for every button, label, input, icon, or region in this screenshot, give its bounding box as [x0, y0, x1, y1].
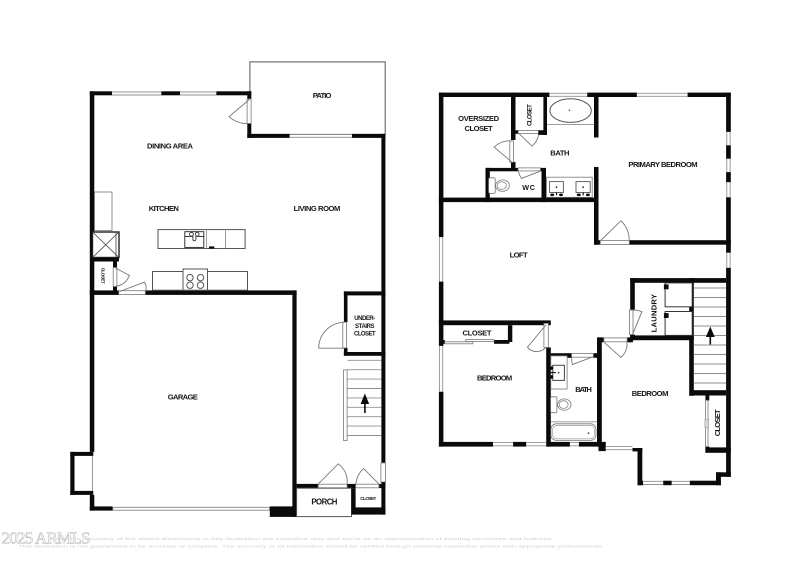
svg-text:LOFT: LOFT	[510, 251, 528, 260]
svg-text:CLOSET: CLOSET	[463, 329, 492, 338]
svg-text:BEDROOM: BEDROOM	[632, 389, 669, 398]
svg-text:CLOSET: CLOSET	[101, 267, 106, 283]
svg-text:LIVING ROOM: LIVING ROOM	[294, 204, 341, 213]
svg-text:LAUNDRY: LAUNDRY	[650, 294, 659, 332]
svg-text:CLOSET: CLOSET	[354, 332, 376, 338]
svg-text:BATH: BATH	[575, 385, 592, 394]
svg-text:This illustration is not guara: This illustration is not guaranteed to b…	[18, 545, 604, 549]
svg-text:CLOSET: CLOSET	[526, 104, 533, 126]
svg-text:and the accuracy of the stated: and the accuracy of the stated dimension…	[55, 537, 554, 541]
svg-text:CLOSET: CLOSET	[465, 124, 493, 133]
svg-text:BEDROOM: BEDROOM	[477, 373, 512, 382]
svg-text:STAIRS: STAIRS	[355, 324, 375, 330]
svg-text:CLOSET: CLOSET	[713, 409, 722, 436]
svg-text:PORCH: PORCH	[311, 497, 337, 506]
svg-text:WC: WC	[522, 183, 535, 192]
svg-text:UNDER-: UNDER-	[354, 316, 375, 322]
svg-text:PATIO: PATIO	[313, 91, 332, 100]
svg-text:CLOSET: CLOSET	[360, 496, 376, 501]
svg-text:KITCHEN: KITCHEN	[149, 204, 179, 213]
svg-text:BATH: BATH	[550, 148, 569, 157]
svg-text:GARAGE: GARAGE	[168, 392, 198, 401]
svg-text:OVERSIZED: OVERSIZED	[458, 114, 499, 123]
svg-text:PRIMARY BEDROOM: PRIMARY BEDROOM	[628, 160, 697, 169]
svg-text:DINING AREA: DINING AREA	[147, 141, 194, 150]
